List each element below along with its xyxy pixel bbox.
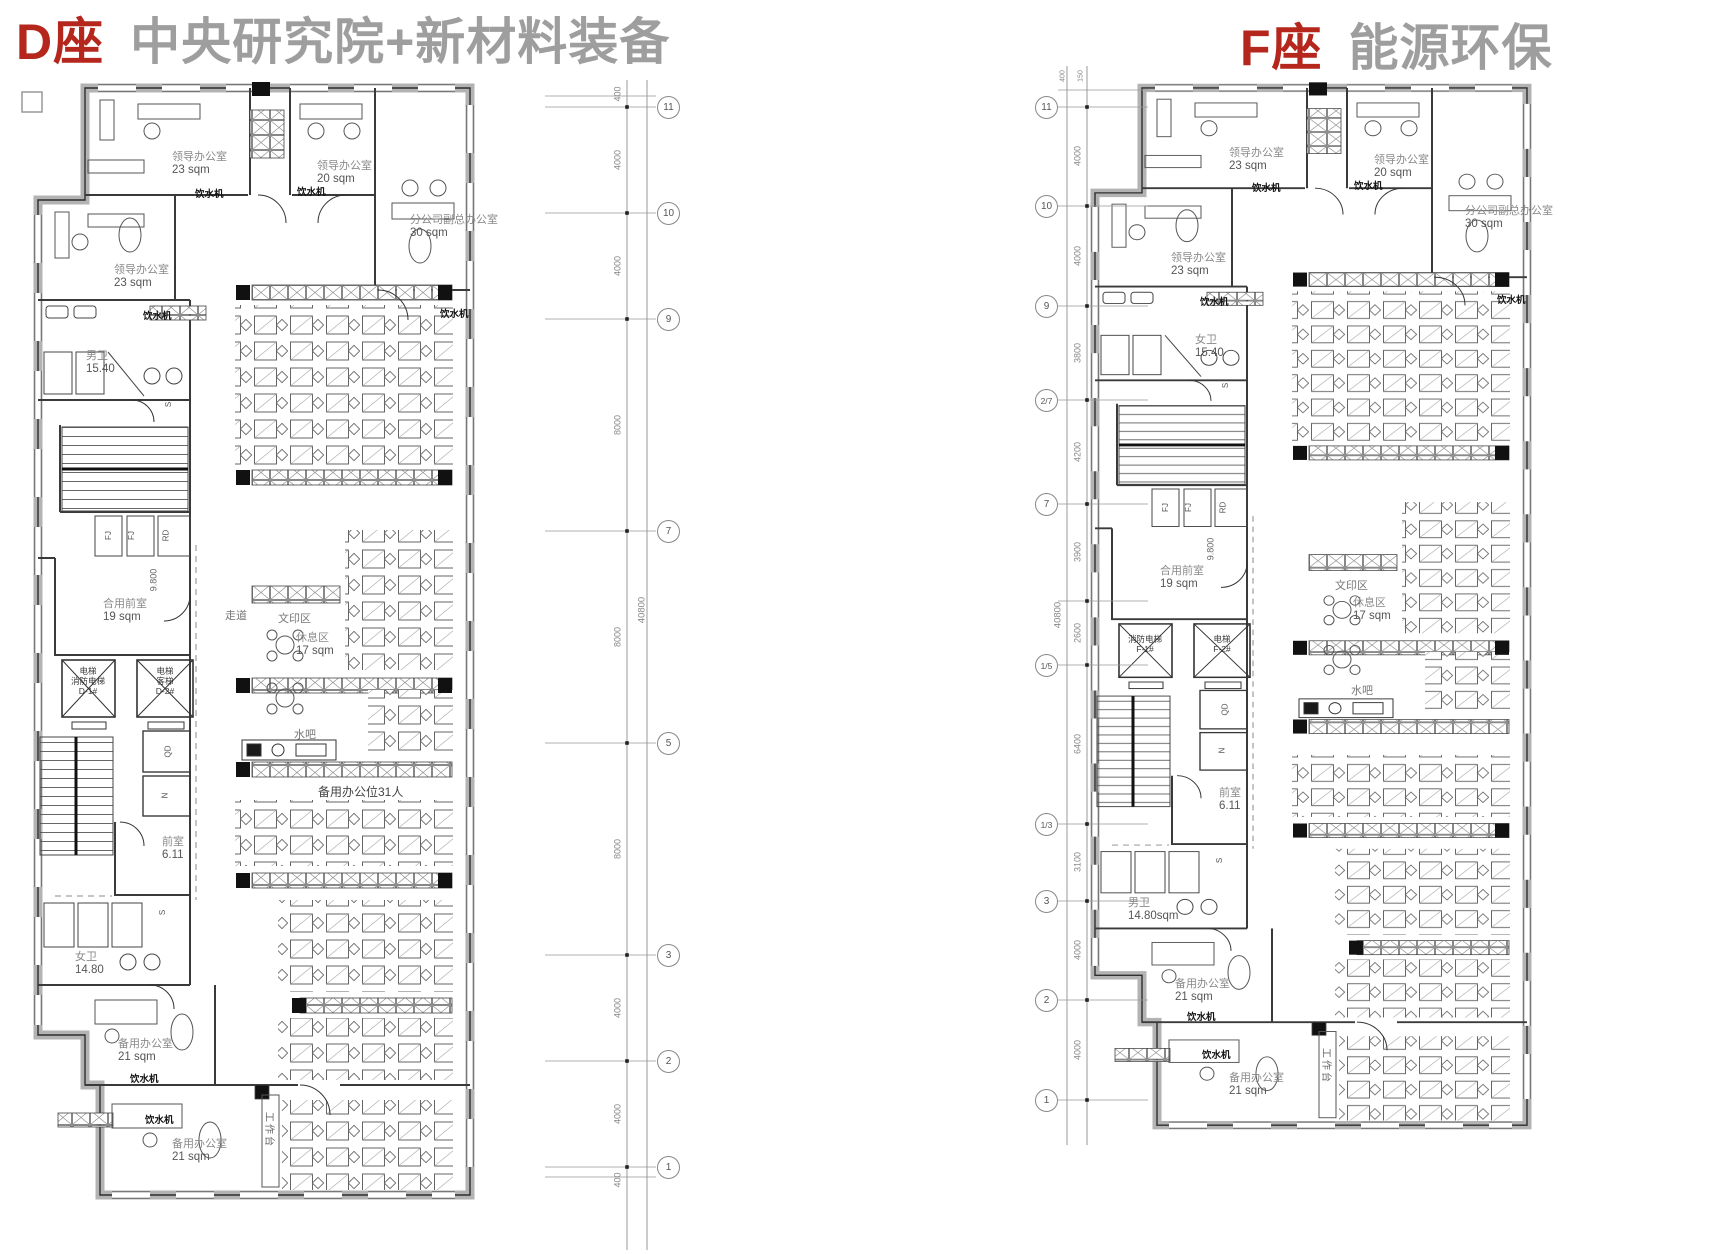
room-label-wc-bottom: 男卫14.80sqm	[1128, 897, 1179, 923]
tag-rd: RD	[1218, 502, 1227, 514]
tag-rd: RD	[161, 530, 170, 542]
grid-bubble-f-1-3: 1/3	[1035, 813, 1058, 836]
zone-label-print: 文印区	[278, 610, 311, 626]
zone-label-water-bar: 水吧	[294, 726, 316, 742]
grid-top-dim: 150	[1078, 61, 1087, 91]
zone-label-print: 文印区	[1335, 577, 1368, 593]
grid-dim: 4000	[1073, 928, 1084, 972]
tag-qd: QD	[164, 746, 173, 758]
room-label-office-tc: 领导办公室20 sqm	[1374, 154, 1429, 180]
grid-dim: 8000	[613, 827, 624, 871]
water-dispenser-label: 饮水机	[145, 1112, 174, 1126]
grid-bubble-d-11: 11	[657, 96, 680, 119]
tag-n: N	[160, 793, 169, 799]
water-dispenser-label: 饮水机	[195, 186, 224, 200]
room-label-lobby: 合用前室19 sqm	[1160, 565, 1204, 591]
grid-bubble-f-1-5: 1/5	[1035, 654, 1058, 677]
water-dispenser-label: 饮水机	[1200, 294, 1229, 308]
plan-d-geometry	[35, 82, 473, 1198]
plan-d-title: D座中央研究院+新材料装备	[16, 2, 670, 74]
grid-bubble-d-7: 7	[657, 520, 680, 543]
plan-f-title: F座能源环保	[1240, 8, 1553, 80]
elevation-mark: 9.800	[148, 569, 158, 592]
room-label-spare-office-1: 备用办公室21 sqm	[118, 1038, 173, 1064]
plan-f-title-name: 能源环保	[1349, 20, 1553, 76]
grid-total-dim-d: 40800	[637, 585, 648, 635]
grid-dim: 8000	[613, 403, 624, 447]
elevator-2-label: 电梯F-2#	[1195, 634, 1249, 654]
room-label-wc-bottom: 女卫14.80	[75, 951, 104, 977]
room-label-rest: 休息区17 sqm	[1353, 597, 1391, 623]
grid-bubble-f-2-7: 2/7	[1035, 389, 1058, 412]
room-label-wc-top: 男卫15.40	[86, 350, 115, 376]
tag-s: S	[164, 402, 173, 407]
elevator-2-label: 电梯客梯D-2#	[138, 666, 192, 696]
tag-fj: FJ	[127, 531, 136, 540]
plan-linework	[0, 0, 1724, 1254]
grid-bubble-d-9: 9	[657, 308, 680, 331]
grid-dim: 8000	[613, 615, 624, 659]
room-label-wc-top: 女卫15.40	[1195, 334, 1224, 360]
water-dispenser-label: 饮水机	[143, 308, 172, 322]
room-label-office-tl: 领导办公室23 sqm	[1229, 147, 1284, 173]
plan-f-title-code: F座	[1240, 20, 1323, 76]
grid-dim: 3100	[1073, 840, 1084, 884]
zone-label-workbench: 工作台	[263, 1112, 278, 1148]
room-label-lobby: 合用前室19 sqm	[103, 598, 147, 624]
legend-box	[22, 92, 42, 112]
tag-fj: FJ	[1161, 503, 1170, 512]
grid-dim: 6400	[1073, 722, 1084, 766]
grid-dim: 400	[613, 72, 624, 116]
tag-s: S	[1221, 383, 1230, 388]
grid-bubble-f-10: 10	[1035, 195, 1058, 218]
grid-bubble-d-1: 1	[657, 1156, 680, 1179]
grid-bubble-d-5: 5	[657, 732, 680, 755]
zone-label-workbench: 工作台	[1320, 1048, 1335, 1084]
tag-n: N	[1217, 748, 1226, 754]
room-label-office-l: 领导办公室23 sqm	[1171, 252, 1226, 278]
water-dispenser-label: 饮水机	[1252, 180, 1281, 194]
room-label-spare-office-2: 备用办公室21 sqm	[1229, 1072, 1284, 1098]
grid-dim: 3900	[1073, 530, 1084, 574]
grid-dim: 4000	[613, 986, 624, 1030]
tag-s: S	[1215, 858, 1224, 863]
grid-total-dim-f: 40800	[1053, 590, 1064, 640]
room-label-office-vp: 分公司副总办公室30 sqm	[410, 214, 498, 240]
elevator-1-label: 电梯消防电梯D-1#	[62, 666, 114, 696]
grid-dim: 4000	[1073, 234, 1084, 278]
room-label-spare-office-2: 备用办公室21 sqm	[172, 1138, 227, 1164]
water-dispenser-label: 饮水机	[1202, 1047, 1231, 1061]
water-dispenser-label: 饮水机	[1354, 178, 1383, 192]
room-label-office-l: 领导办公室23 sqm	[114, 264, 169, 290]
grid-bubble-d-2: 2	[657, 1050, 680, 1073]
grid-dim: 4000	[1073, 134, 1084, 178]
room-label-spare-office-1: 备用办公室21 sqm	[1175, 978, 1230, 1004]
grid-dim: 4200	[1073, 430, 1084, 474]
water-dispenser-label: 饮水机	[130, 1071, 159, 1085]
tag-qd: QD	[1221, 704, 1230, 716]
grid-dim: 4000	[613, 244, 624, 288]
room-label-ante: 前室6.11	[1219, 787, 1241, 813]
grid-top-dim: 400	[1060, 61, 1069, 91]
floor-plan-sheet: D座中央研究院+新材料装备 F座能源环保 领导办公室23 sqm 领导办公室20…	[0, 0, 1724, 1254]
plan-d-title-code: D座	[16, 14, 104, 70]
grid-bubble-f-11: 11	[1035, 96, 1058, 119]
grid-column-d	[545, 80, 656, 1250]
grid-bubble-d-3: 3	[657, 944, 680, 967]
grid-dim: 400	[613, 1158, 624, 1202]
water-dispenser-label: 饮水机	[1187, 1009, 1216, 1023]
grid-bubble-f-3: 3	[1035, 890, 1058, 913]
grid-dim: 4000	[613, 138, 624, 182]
grid-bubble-f-1: 1	[1035, 1089, 1058, 1112]
grid-dim: 3800	[1073, 331, 1084, 375]
grid-dim: 4000	[1073, 1028, 1084, 1072]
room-label-rest: 休息区17 sqm	[296, 632, 334, 658]
zone-label-water-bar: 水吧	[1351, 682, 1373, 698]
zone-label-spare-seats: 备用办公位31人	[318, 783, 403, 800]
zone-label-corridor: 走道	[225, 607, 247, 623]
plan-d-title-name: 中央研究院+新材料装备	[130, 14, 670, 70]
room-label-office-vp: 分公司副总办公室30 sqm	[1465, 205, 1553, 231]
grid-bubble-f-2: 2	[1035, 989, 1058, 1012]
room-label-office-tl: 领导办公室23 sqm	[172, 151, 227, 177]
grid-column-f	[1058, 66, 1148, 1145]
grid-bubble-f-9: 9	[1035, 295, 1058, 318]
room-label-ante: 前室6.11	[162, 836, 184, 862]
grid-bubble-f-7: 7	[1035, 493, 1058, 516]
grid-dim: 2600	[1073, 611, 1084, 655]
grid-dim: 4000	[613, 1092, 624, 1136]
room-label-office-tc: 领导办公室20 sqm	[317, 160, 372, 186]
grid-bubble-d-10: 10	[657, 202, 680, 225]
water-dispenser-label: 饮水机	[297, 184, 326, 198]
tag-fj: FJ	[104, 531, 113, 540]
tag-s: S	[158, 910, 167, 915]
water-dispenser-label: 饮水机	[440, 306, 469, 320]
tag-fj: FJ	[1184, 503, 1193, 512]
water-dispenser-label: 饮水机	[1497, 292, 1526, 306]
elevation-mark: 9.800	[1205, 538, 1215, 561]
elevator-1-label: 消防电梯F-1#	[1119, 634, 1171, 654]
plan-f-geometry	[1092, 82, 1530, 1128]
